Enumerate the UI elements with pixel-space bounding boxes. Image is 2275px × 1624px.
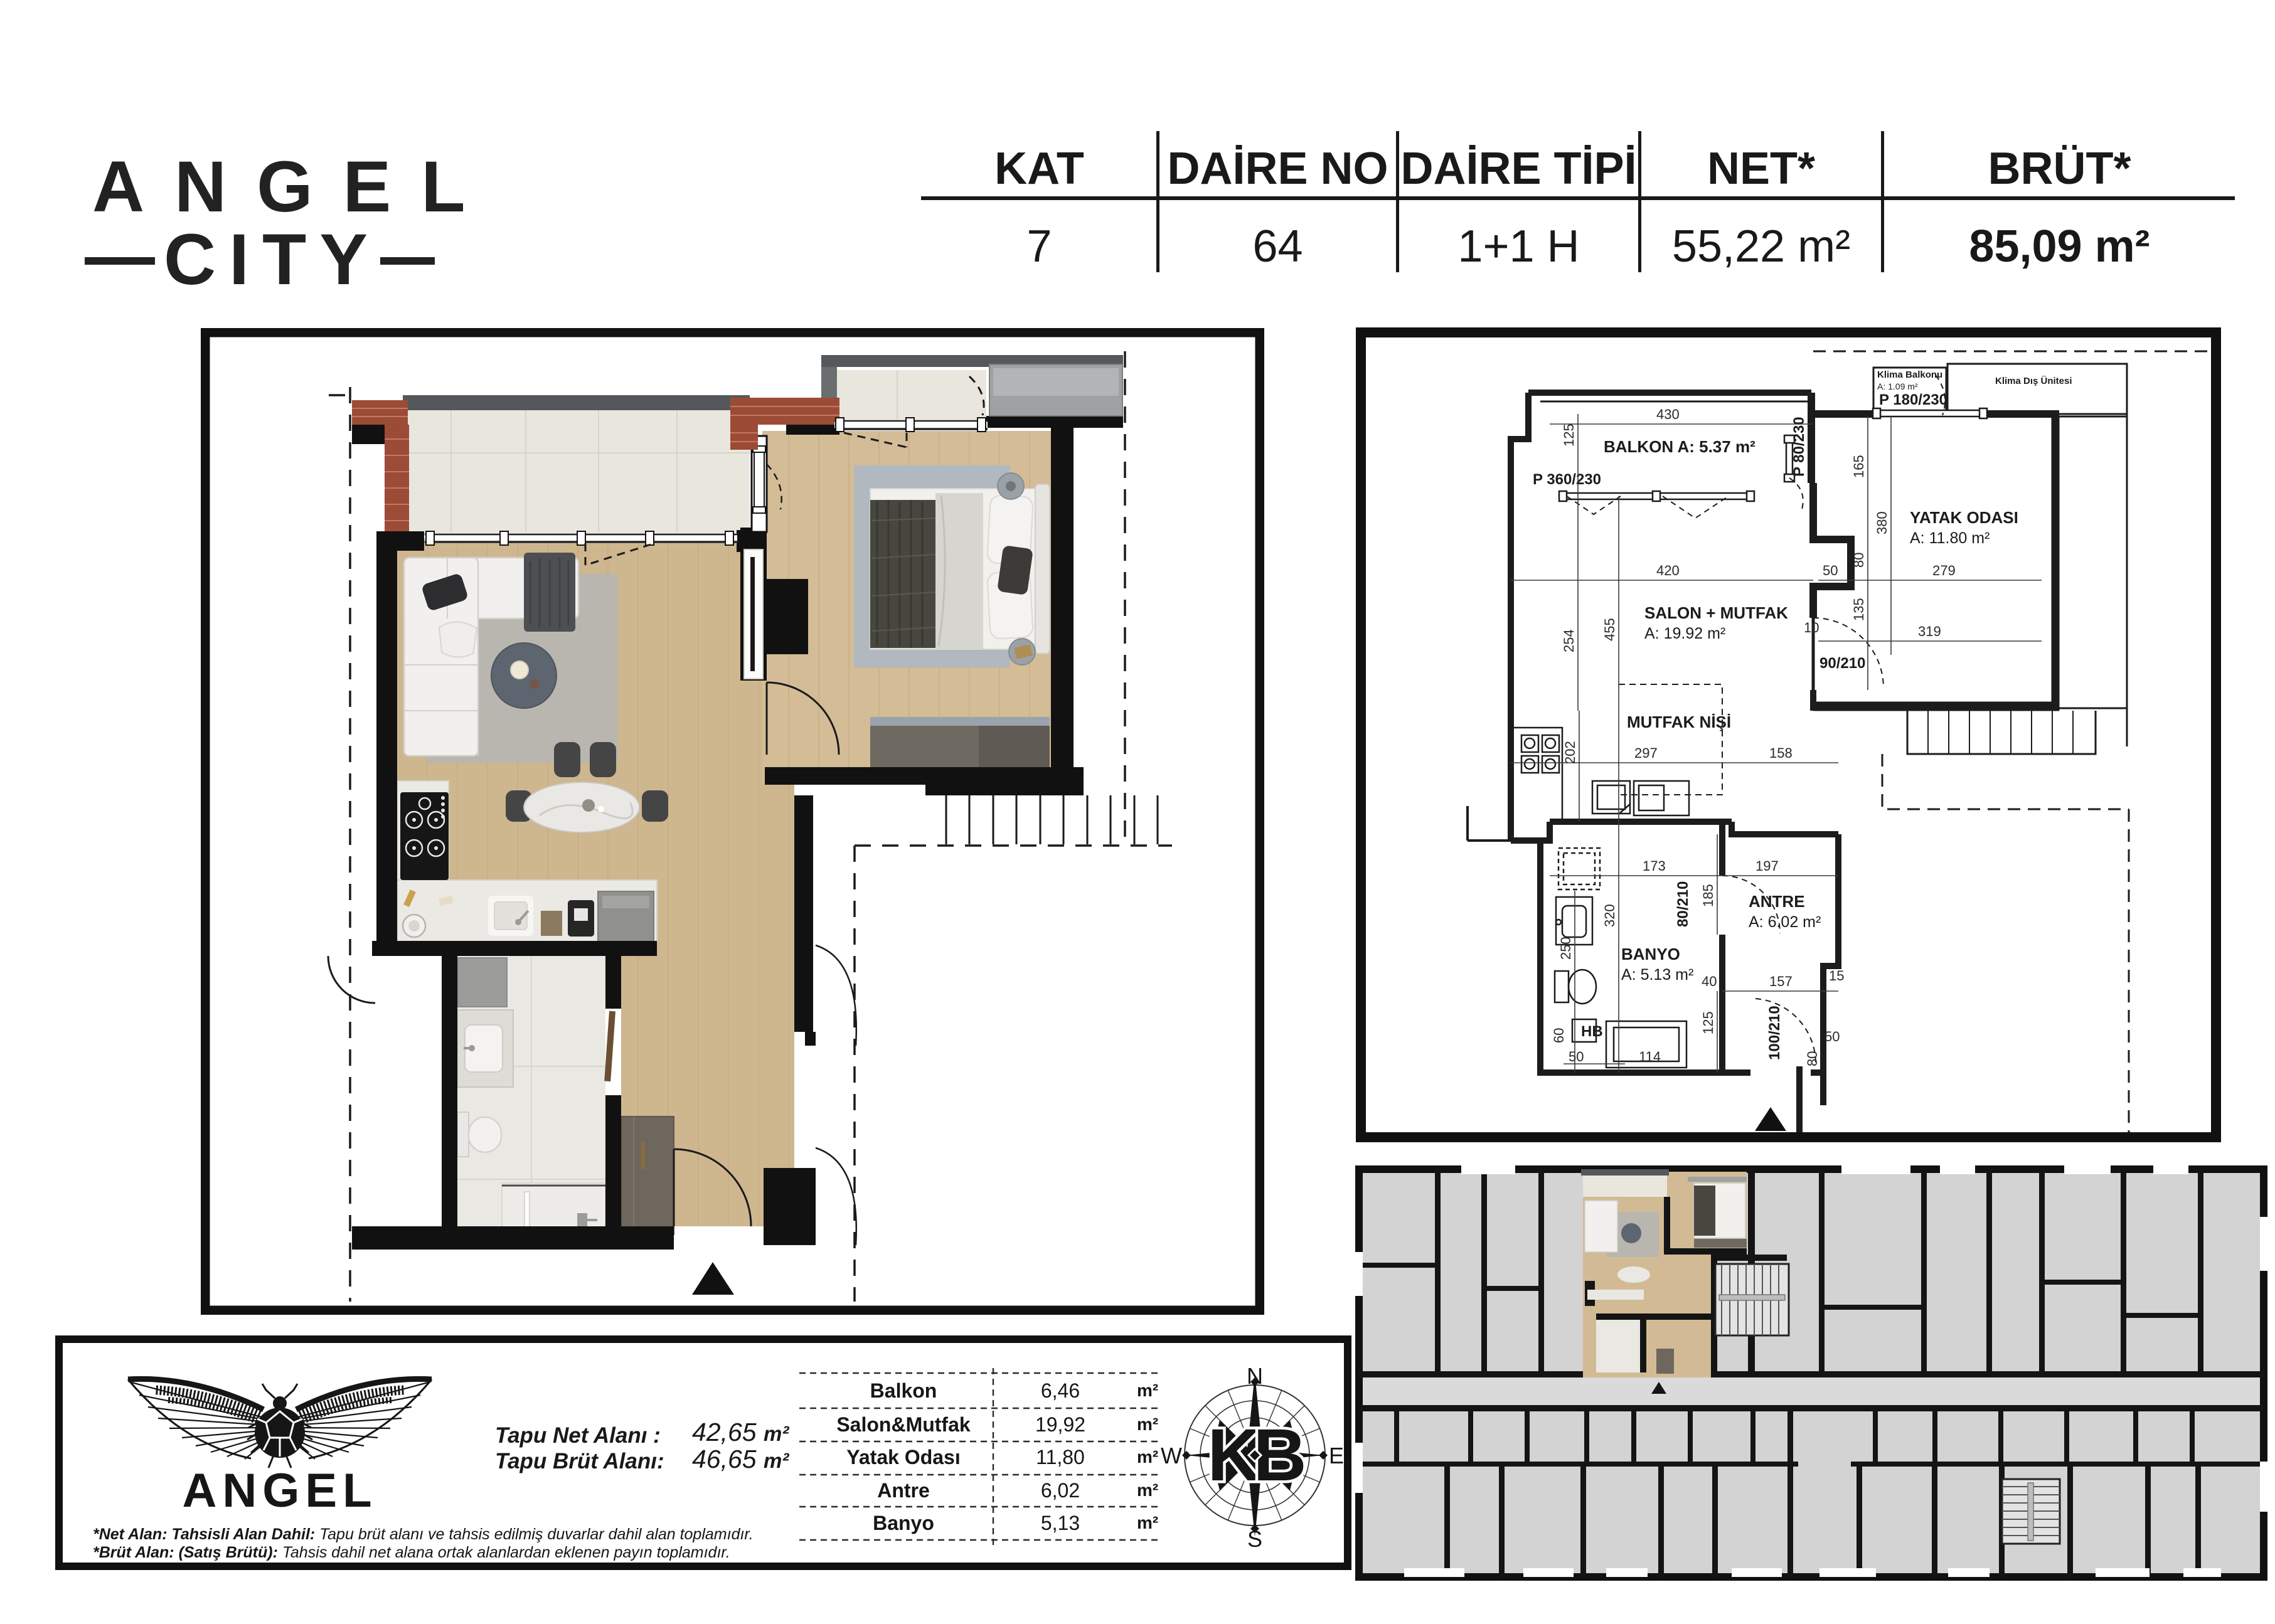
- svg-text:SALON + MUTFAK: SALON + MUTFAK: [1644, 603, 1788, 622]
- svg-text:ANTRE: ANTRE: [1749, 892, 1805, 911]
- svg-text:E: E: [1329, 1443, 1344, 1468]
- svg-text:A: 5.13 m²: A: 5.13 m²: [1621, 966, 1693, 984]
- svg-text:125: 125: [1561, 423, 1577, 447]
- svg-text:P 360/230: P 360/230: [1533, 471, 1601, 488]
- svg-text:YATAK ODASI: YATAK ODASI: [1910, 508, 2018, 527]
- svg-text:297: 297: [1634, 745, 1658, 761]
- svg-text:S: S: [1247, 1526, 1262, 1552]
- svg-text:N: N: [1247, 1364, 1263, 1389]
- svg-text:380: 380: [1874, 511, 1890, 534]
- svg-text:320: 320: [1602, 904, 1617, 927]
- svg-text:279: 279: [1932, 563, 1956, 578]
- svg-text:Balkon: Balkon: [870, 1379, 937, 1402]
- svg-text:165: 165: [1851, 455, 1867, 478]
- svg-text:157: 157: [1769, 974, 1793, 989]
- svg-text:11,80: 11,80: [1036, 1446, 1085, 1468]
- svg-text:6,02: 6,02: [1041, 1479, 1080, 1502]
- svg-text:202: 202: [1562, 741, 1578, 764]
- svg-text:Klima Balkonu: Klima Balkonu: [1877, 369, 1942, 380]
- svg-text:254: 254: [1561, 629, 1577, 652]
- svg-text:W: W: [1161, 1443, 1182, 1468]
- svg-text:60: 60: [1551, 1028, 1567, 1043]
- svg-text:5,13: 5,13: [1041, 1512, 1080, 1534]
- svg-text:80: 80: [1804, 1051, 1820, 1066]
- svg-text:250: 250: [1558, 937, 1574, 960]
- svg-text:80/210: 80/210: [1675, 881, 1692, 927]
- svg-text:185: 185: [1700, 884, 1716, 907]
- svg-text:135: 135: [1851, 598, 1867, 621]
- svg-text:319: 319: [1918, 624, 1941, 639]
- svg-text:90/210: 90/210: [1819, 655, 1865, 672]
- svg-text:114: 114: [1639, 1049, 1661, 1064]
- svg-text:A: 1.09 m²: A: 1.09 m²: [1877, 381, 1918, 391]
- svg-text:Antre: Antre: [877, 1479, 930, 1502]
- svg-text:Banyo: Banyo: [873, 1512, 934, 1534]
- svg-text:A: 6.02 m²: A: 6.02 m²: [1749, 913, 1821, 931]
- svg-text:19,92: 19,92: [1035, 1413, 1085, 1436]
- svg-text:15: 15: [1829, 968, 1844, 984]
- svg-text:430: 430: [1656, 406, 1680, 422]
- svg-text:A: 19.92 m²: A: 19.92 m²: [1644, 625, 1725, 642]
- svg-text:ANGEL: ANGEL: [183, 1464, 378, 1517]
- svg-text:Yatak Odası: Yatak Odası: [846, 1446, 960, 1468]
- svg-text:80: 80: [1851, 553, 1867, 568]
- svg-text:125: 125: [1700, 1011, 1716, 1034]
- svg-text:BANYO: BANYO: [1621, 945, 1680, 963]
- svg-text:Salon&Mutfak: Salon&Mutfak: [836, 1413, 971, 1436]
- svg-text:BALKON A: 5.37 m²: BALKON A: 5.37 m²: [1604, 437, 1756, 456]
- svg-text:455: 455: [1602, 618, 1617, 641]
- svg-text:Klima Dış Ünitesi: Klima Dış Ünitesi: [1995, 376, 2072, 386]
- svg-text:6,46: 6,46: [1041, 1379, 1080, 1402]
- svg-text:100/210: 100/210: [1766, 1006, 1783, 1060]
- svg-text:10: 10: [1804, 620, 1819, 635]
- svg-text:50: 50: [1825, 1029, 1840, 1044]
- svg-text:158: 158: [1769, 745, 1793, 761]
- svg-text:P 180/230: P 180/230: [1879, 391, 1947, 408]
- svg-text:P 80/230: P 80/230: [1791, 417, 1808, 477]
- svg-text:40: 40: [1702, 974, 1717, 989]
- svg-text:197: 197: [1756, 858, 1779, 874]
- svg-text:173: 173: [1643, 858, 1666, 874]
- svg-text:50: 50: [1569, 1049, 1584, 1064]
- svg-text:50: 50: [1823, 563, 1838, 578]
- svg-text:HB: HB: [1581, 1023, 1603, 1040]
- svg-text:MUTFAK NİŞİ: MUTFAK NİŞİ: [1627, 713, 1731, 731]
- svg-text:A: 11.80 m²: A: 11.80 m²: [1910, 529, 1990, 547]
- svg-text:420: 420: [1656, 563, 1680, 578]
